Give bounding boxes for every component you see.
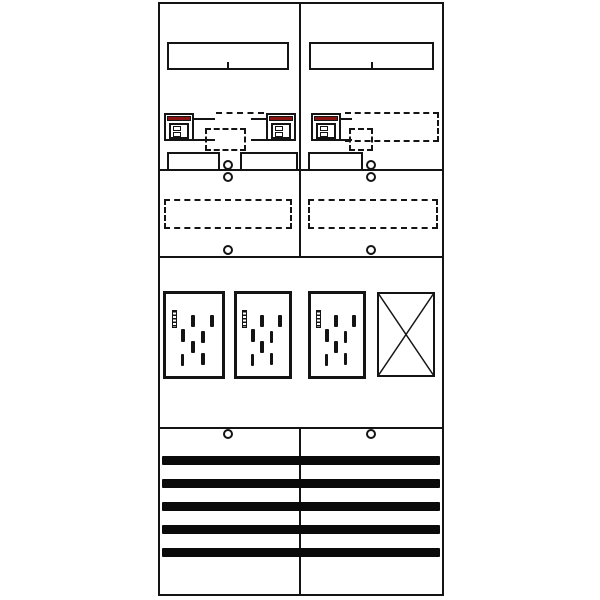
device-red-indicator <box>314 116 338 121</box>
meter-dash-mark <box>344 331 348 343</box>
device-slot <box>173 132 181 137</box>
center-divider-upper <box>299 2 301 258</box>
dashed-reserved-area-right <box>308 199 438 229</box>
meter-dash-mark <box>201 331 205 343</box>
main-device-1 <box>164 113 194 141</box>
meter-dash-mark <box>260 315 264 327</box>
busbar-cover-bar <box>162 548 440 557</box>
dashed-outline-device-area-right <box>345 112 439 142</box>
reserve-plate <box>377 292 435 377</box>
main-device-2 <box>266 113 296 141</box>
terminal-strip-3 <box>308 152 363 171</box>
device-slot <box>275 132 283 137</box>
meter-plate-1 <box>163 291 225 379</box>
meter-dash-mark <box>334 315 338 327</box>
device-plate-line <box>251 139 266 141</box>
device-slot <box>173 126 181 131</box>
device-slot <box>320 132 328 137</box>
meter-plate-2 <box>234 291 292 379</box>
screw-circle <box>223 429 233 439</box>
screw-circle <box>366 160 376 170</box>
busbar-cover-bar <box>162 525 440 534</box>
din-rail-right <box>309 42 434 70</box>
drawing-canvas <box>0 0 600 600</box>
section-line-3 <box>158 427 444 429</box>
busbar-cover-bar <box>162 502 440 511</box>
meter-slot-mark <box>316 310 321 328</box>
meter-slot-mark <box>172 310 177 328</box>
meter-dash-mark <box>260 341 264 353</box>
terminal-strip-2 <box>240 152 298 171</box>
device-red-indicator <box>167 116 191 121</box>
device-terminal-core <box>169 123 189 139</box>
meter-dash-mark <box>181 354 185 366</box>
meter-dash-mark <box>270 353 274 365</box>
meter-plate-3 <box>308 291 366 379</box>
section-line-2 <box>158 256 444 258</box>
meter-dash-mark <box>181 329 185 341</box>
device-plate-line <box>251 118 266 120</box>
rail-tick <box>371 62 373 68</box>
meter-dash-mark <box>210 315 214 327</box>
screw-circle <box>223 245 233 255</box>
main-device-3 <box>311 113 341 141</box>
meter-dash-mark <box>325 329 329 341</box>
meter-dash-mark <box>191 341 195 353</box>
meter-slot-mark <box>242 310 247 328</box>
meter-dash-mark <box>251 354 255 366</box>
dashed-reserved-area-left <box>164 199 292 229</box>
rail-tick <box>227 62 229 68</box>
device-slot <box>320 126 328 131</box>
device-slot <box>275 126 283 131</box>
device-plate-line <box>194 118 215 120</box>
meter-dash-mark <box>325 354 329 366</box>
device-red-indicator <box>269 116 293 121</box>
device-terminal-core <box>316 123 336 139</box>
busbar-cover-bar <box>162 479 440 488</box>
screw-circle <box>366 429 376 439</box>
meter-dash-mark <box>344 353 348 365</box>
terminal-strip-1 <box>167 152 220 171</box>
dashed-outline-small-left <box>205 128 246 151</box>
screw-circle <box>223 160 233 170</box>
screw-circle <box>366 245 376 255</box>
meter-dash-mark <box>201 353 205 365</box>
screw-circle <box>366 172 376 182</box>
busbar-cover-bar <box>162 456 440 465</box>
screw-circle <box>223 172 233 182</box>
meter-dash-mark <box>270 331 274 343</box>
device-terminal-core <box>271 123 291 139</box>
center-divider-lower <box>299 428 301 596</box>
meter-dash-mark <box>334 341 338 353</box>
dashed-outline-top-left <box>216 112 264 114</box>
meter-dash-mark <box>278 315 282 327</box>
din-rail-left <box>167 42 289 70</box>
meter-dash-mark <box>191 315 195 327</box>
meter-dash-mark <box>251 329 255 341</box>
meter-dash-mark <box>352 315 356 327</box>
